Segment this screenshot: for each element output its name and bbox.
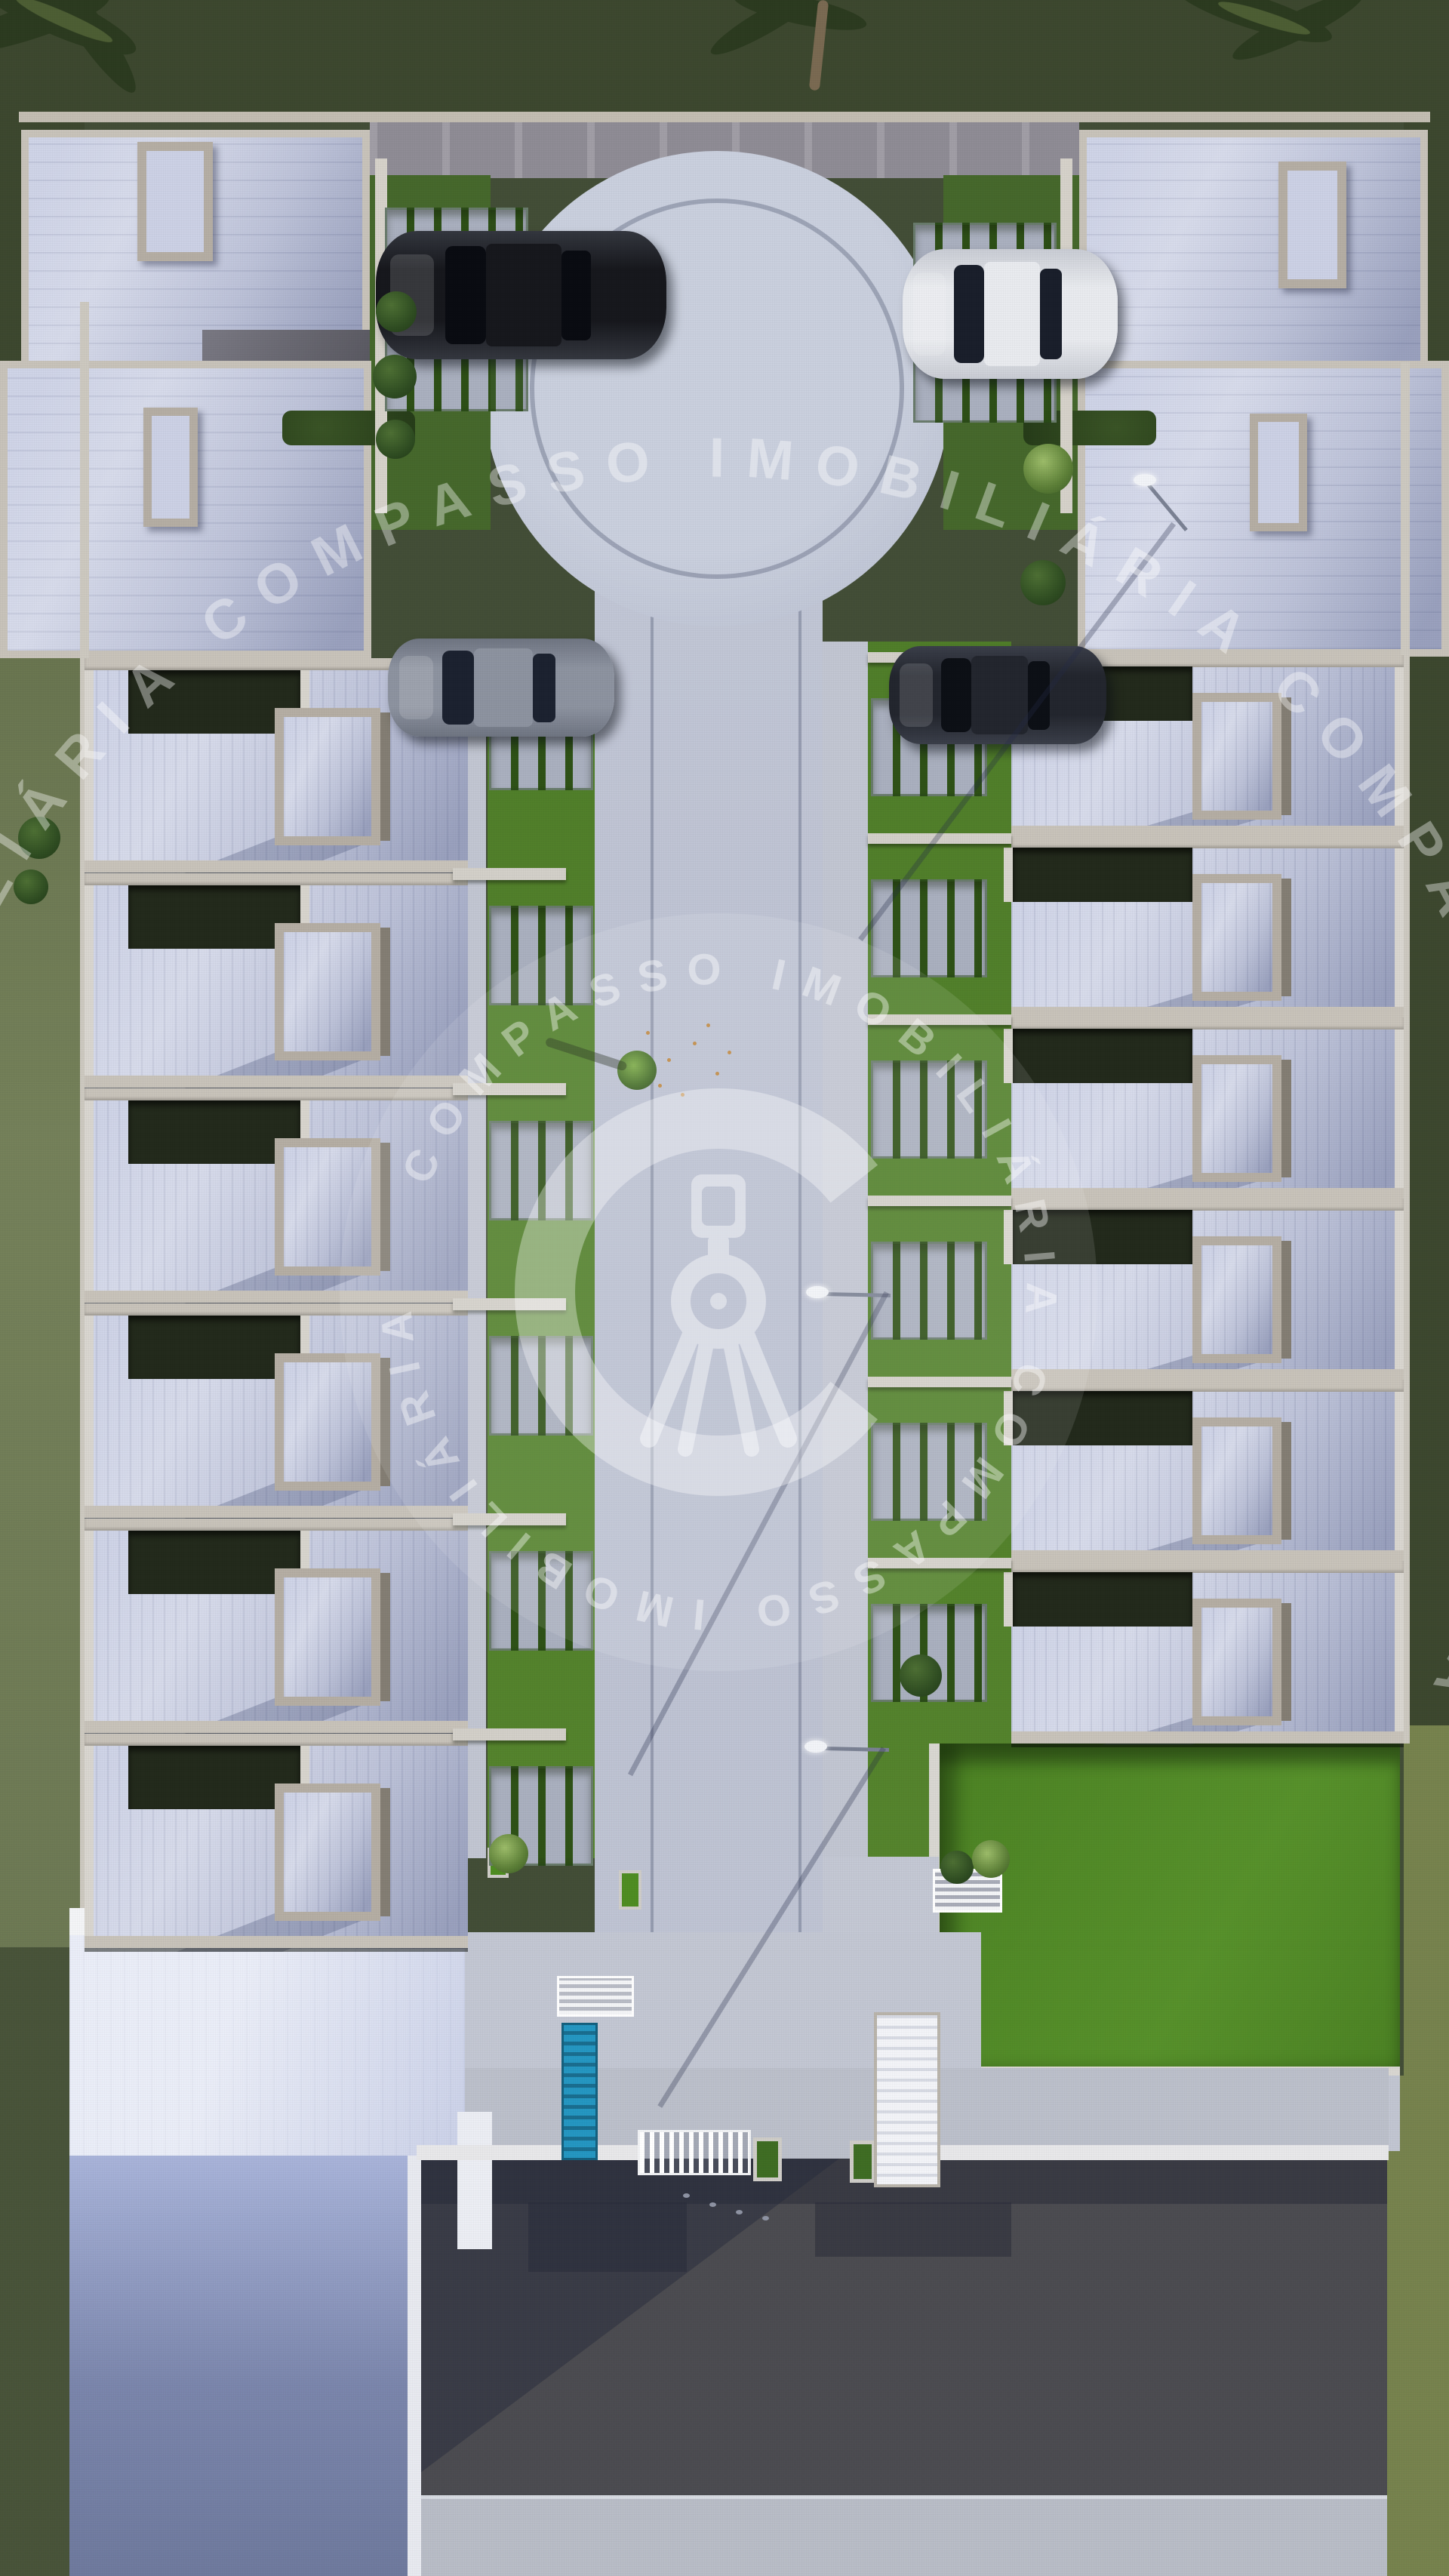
- car-white-roof-panel: [984, 262, 1040, 366]
- street-lamp-head-1: [1134, 474, 1156, 486]
- apron-mark-1: [683, 2193, 690, 2198]
- house-row-right-6-courtyard-wall: [1004, 1572, 1013, 1627]
- house-row-left-2-roofbox-face: [380, 928, 390, 1056]
- house-row-right-5-roofbox: [1192, 1417, 1281, 1544]
- house-row-right-2-roofbox-face: [1281, 879, 1291, 996]
- house-row-right-2-edge-wall: [1395, 848, 1404, 1007]
- parking-pad-right-4: [871, 1242, 987, 1340]
- plant-top-right: [1020, 560, 1066, 605]
- house-row-left-5-roofbox-face: [380, 1573, 390, 1701]
- leaf-speckle-4: [715, 1072, 719, 1076]
- house-row-right-3-roofbox-face: [1281, 1060, 1291, 1177]
- parking-pad-left-2: [489, 906, 593, 1005]
- bush-right-verge: [900, 1654, 942, 1697]
- street-lamp-arm-1: [1147, 484, 1188, 531]
- lamp-shadow-line-2: [628, 1291, 889, 1777]
- bush-left-margin-2: [14, 869, 48, 904]
- lamp-shadow-line-3: [657, 1747, 886, 2108]
- house-row-left-6-roofbox-face: [380, 1788, 390, 1916]
- apron-mark-3: [736, 2210, 743, 2214]
- house-row-right-4-parapet-top: [1011, 1199, 1404, 1211]
- house-row-right-5-courtyard-wall: [1004, 1391, 1013, 1445]
- leaf-speckle-1: [646, 1031, 650, 1035]
- bush-left-margin-1: [18, 817, 60, 859]
- plant-lawn-corner-2: [972, 1840, 1010, 1878]
- wing-wall-left-4: [453, 1298, 566, 1310]
- wing-wall-left-6: [453, 1728, 566, 1740]
- car-silver-hood-highlight: [399, 656, 433, 719]
- house-row-left-2-roofbox: [275, 923, 380, 1060]
- house-row-left-6-roofbox: [275, 1784, 380, 1921]
- bush-top-left-2: [373, 355, 417, 399]
- house-row-right-6-parapet-top: [1011, 1561, 1404, 1573]
- wing-wall-right-3: [868, 1014, 1011, 1025]
- parking-pad-left-3: [489, 1121, 593, 1220]
- leaf-speckle-8: [728, 1051, 731, 1054]
- house-row-right-6-courtyard: [1013, 1572, 1192, 1627]
- house-row-right-6-roofbox-face: [1281, 1603, 1291, 1721]
- house-row-left-3-roofbox-face: [380, 1143, 390, 1271]
- house-row-right-5-roofbox-face: [1281, 1422, 1291, 1540]
- house-row-left-1-roofbox-face: [380, 712, 390, 841]
- house-row-right-2-courtyard-wall: [1004, 848, 1013, 902]
- house-row-right-5-edge-wall: [1395, 1392, 1404, 1550]
- house-row-left-6-parapet-top: [85, 1734, 468, 1746]
- wing-wall-right-4: [868, 1196, 1011, 1206]
- house-row-right-2-roofbox: [1192, 874, 1281, 1001]
- car-darkgray-hood-highlight: [900, 663, 932, 726]
- bush-top-left-1: [376, 291, 417, 332]
- house-row-left-2-edge-wall: [85, 885, 94, 1076]
- house-row-left-5-parapet-top: [85, 1519, 468, 1531]
- house-row-right-4-roofbox-face: [1281, 1241, 1291, 1359]
- house-row-left-5-parapet-bottom: [85, 1721, 468, 1733]
- car-white-hood-highlight: [913, 272, 946, 355]
- leaf-speckle-6: [658, 1084, 662, 1088]
- bush-top-left-3: [376, 420, 415, 459]
- car-darkgray-windshield-glass: [941, 658, 971, 733]
- car-white-rear-glass: [1040, 269, 1062, 359]
- wing-wall-right-5: [868, 1377, 1011, 1387]
- parking-pad-left-4: [489, 1336, 593, 1436]
- parking-pad-right-3: [871, 1060, 987, 1159]
- aerial-render: COMPASSO IMOBILIÁRIA COMPASSO IMOBILIÁRI…: [0, 0, 1449, 2576]
- house-row-right-5-courtyard: [1013, 1391, 1192, 1445]
- palm-left-verge: [489, 1834, 528, 1873]
- house-row-left-4-roofbox-face: [380, 1358, 390, 1486]
- house-row-left-4-roofbox: [275, 1353, 380, 1491]
- house-row-left-4-parapet-top: [85, 1303, 468, 1316]
- street-lamp-head-2: [806, 1286, 829, 1298]
- house-row-left-2-parapet-top: [85, 873, 468, 885]
- house-row-left-1-parapet-bottom: [85, 860, 468, 873]
- parking-pad-right-5: [871, 1423, 987, 1521]
- parking-pad-right-2: [871, 879, 987, 977]
- leaf-speckle-3: [693, 1042, 697, 1045]
- car-black-windshield-glass: [445, 246, 486, 343]
- car-black-roof-panel: [486, 244, 561, 346]
- tree-shadow-streak: [545, 1037, 628, 1072]
- house-row-right-2-parapet-top: [1011, 836, 1404, 848]
- house-row-left-1-roofbox: [275, 708, 380, 845]
- house-row-right-1-edge-wall: [1395, 667, 1404, 826]
- apron-mark-2: [709, 2202, 716, 2207]
- street-lamp-head-3: [804, 1740, 827, 1753]
- wing-wall-left-3: [453, 1083, 566, 1095]
- house-row-right-3-courtyard-wall: [1004, 1029, 1013, 1083]
- house-row-left-3-parapet-bottom: [85, 1291, 468, 1303]
- house-row-right-3-roofbox: [1192, 1055, 1281, 1182]
- apron-mark-4: [762, 2216, 769, 2221]
- wing-wall-left-2: [453, 868, 566, 880]
- house-row-right-5-parapet-top: [1011, 1380, 1404, 1392]
- house-row-right-3-courtyard: [1013, 1029, 1192, 1083]
- leaf-speckle-7: [706, 1023, 710, 1027]
- car-silver-roof-panel: [474, 648, 533, 727]
- car-white-windshield-glass: [954, 265, 984, 364]
- house-row-right-6-roofbox: [1192, 1599, 1281, 1725]
- house-row-left-3-parapet-top: [85, 1088, 468, 1100]
- house-row-left-5-edge-wall: [85, 1531, 94, 1721]
- house-row-left-6-edge-wall: [85, 1746, 94, 1936]
- house-row-left-1-edge-wall: [85, 670, 94, 860]
- car-silver-rear-glass: [533, 654, 555, 722]
- house-row-right-4-roofbox: [1192, 1236, 1281, 1363]
- plant-lawn-corner-1: [940, 1851, 974, 1884]
- house-row-right-6-edge-wall: [1395, 1573, 1404, 1731]
- house-row-right-3-parapet-top: [1011, 1017, 1404, 1029]
- house-row-left-3-roofbox: [275, 1138, 380, 1276]
- car-silver-windshield-glass: [442, 651, 474, 725]
- house-row-left-4-parapet-bottom: [85, 1506, 468, 1518]
- wing-wall-left-5: [453, 1513, 566, 1525]
- house-row-left-6-parapet-bottom: [85, 1936, 468, 1948]
- house-row-right-1-roofbox-face: [1281, 697, 1291, 815]
- parking-pad-left-5: [489, 1551, 593, 1651]
- house-row-right-6-parapet-bottom: [1011, 1731, 1404, 1743]
- house-row-left-4-edge-wall: [85, 1316, 94, 1506]
- leaf-speckle-2: [667, 1058, 671, 1062]
- house-row-right-1-roofbox: [1192, 693, 1281, 820]
- house-row-left-3-edge-wall: [85, 1100, 94, 1291]
- house-row-left-2-parapet-bottom: [85, 1076, 468, 1088]
- house-row-right-4-edge-wall: [1395, 1211, 1404, 1369]
- house-row-right-3-edge-wall: [1395, 1029, 1404, 1188]
- house-row-left-5-roofbox: [275, 1568, 380, 1706]
- house-row-right-2-courtyard: [1013, 848, 1192, 902]
- house-row-right-4-courtyard-wall: [1004, 1210, 1013, 1264]
- house-row-right-4-courtyard: [1013, 1210, 1192, 1264]
- car-black-rear-glass: [561, 251, 591, 340]
- built-content: [0, 0, 1449, 2576]
- agave-top-right: [1023, 444, 1073, 494]
- wing-wall-right-6: [868, 1558, 1011, 1568]
- leaf-speckle-5: [681, 1093, 685, 1097]
